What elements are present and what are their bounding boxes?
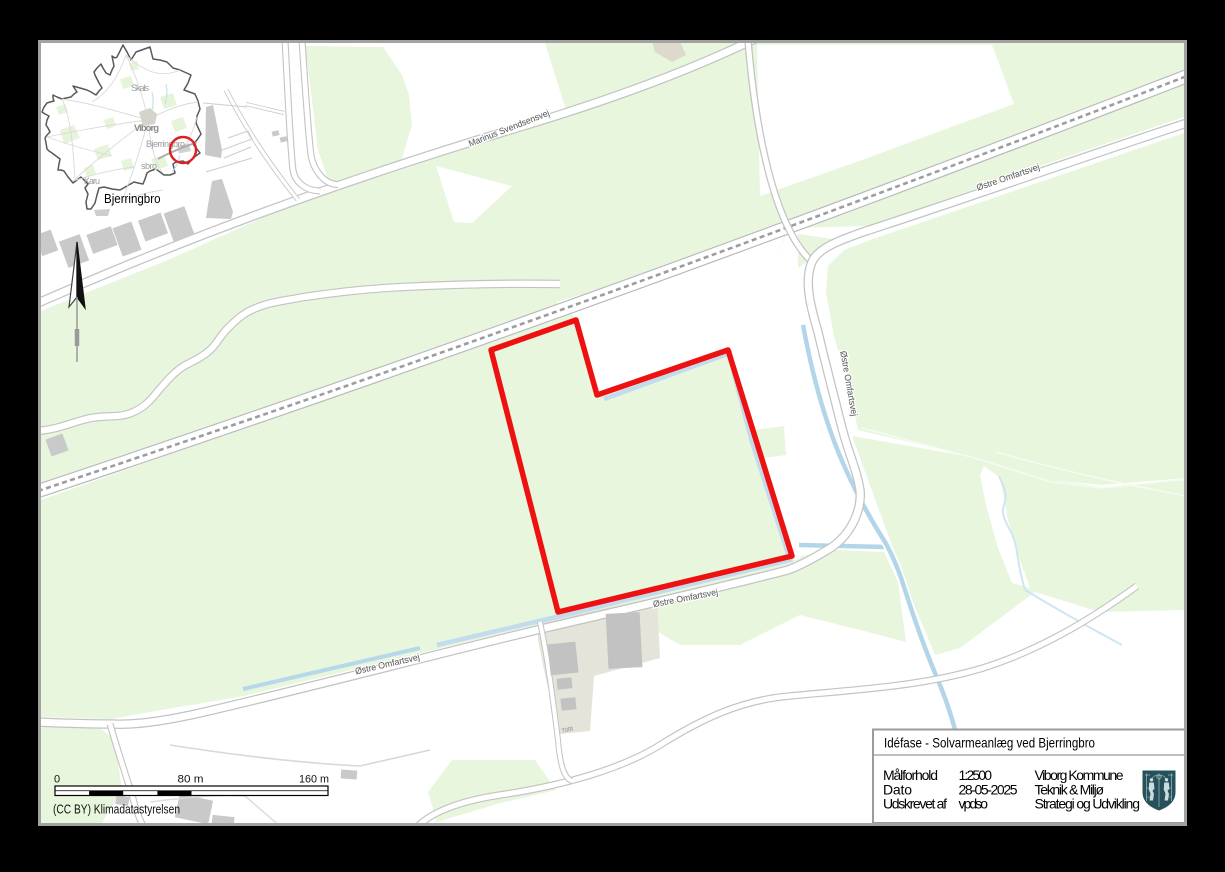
svg-text:(CC BY) Klimadatastyrelsen: (CC BY) Klimadatastyrelsen: [53, 802, 180, 817]
svg-text:Bjerringbro: Bjerringbro: [104, 191, 161, 206]
svg-text:Idéfase - Solvarmeanlæg ved Bj: Idéfase - Solvarmeanlæg ved Bjerringbro: [884, 735, 1095, 751]
svg-text:Skals: Skals: [131, 83, 150, 93]
svg-text:Karu: Karu: [84, 176, 100, 186]
svg-text:sbro: sbro: [141, 161, 157, 171]
svg-text:Strategi og Udvikling: Strategi og Udvikling: [1035, 796, 1141, 812]
svg-text:0: 0: [54, 774, 60, 786]
svg-text:80 m: 80 m: [178, 774, 204, 786]
svg-text:160 m: 160 m: [299, 774, 329, 786]
svg-text:Bjerringbro: Bjerringbro: [146, 139, 185, 149]
svg-text:Udskrevet af: Udskrevet af: [883, 796, 947, 812]
svg-text:Viborg: Viborg: [134, 123, 159, 134]
svg-text:vpdso: vpdso: [959, 796, 989, 812]
